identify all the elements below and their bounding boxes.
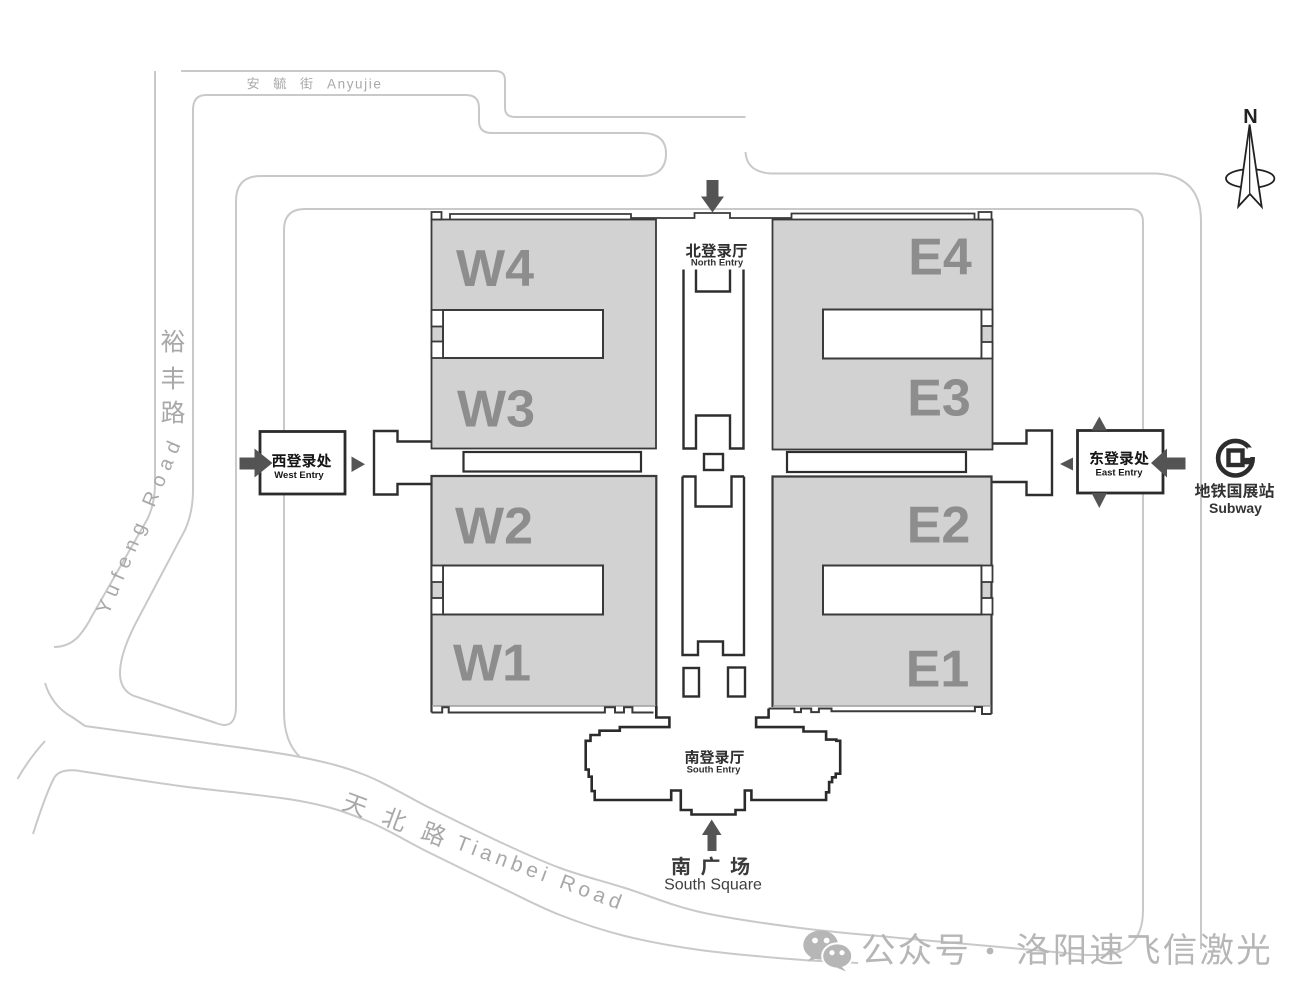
svg-text:E2: E2 <box>907 497 971 555</box>
svg-text:E1: E1 <box>906 641 970 699</box>
svg-text:Subway: Subway <box>1209 500 1262 516</box>
svg-text:Anyujie: Anyujie <box>327 77 382 92</box>
svg-text:W4: W4 <box>456 240 534 298</box>
svg-text:W3: W3 <box>457 381 535 439</box>
svg-text:E3: E3 <box>907 370 971 428</box>
svg-text:West Entry: West Entry <box>274 470 324 481</box>
svg-text:W1: W1 <box>453 635 531 693</box>
svg-text:North Entry: North Entry <box>691 258 744 269</box>
svg-text:South Square: South Square <box>664 877 762 894</box>
svg-text:South Entry: South Entry <box>687 765 742 776</box>
svg-text:E4: E4 <box>908 229 972 287</box>
svg-text:W2: W2 <box>455 498 533 556</box>
svg-text:East Entry: East Entry <box>1096 468 1144 479</box>
